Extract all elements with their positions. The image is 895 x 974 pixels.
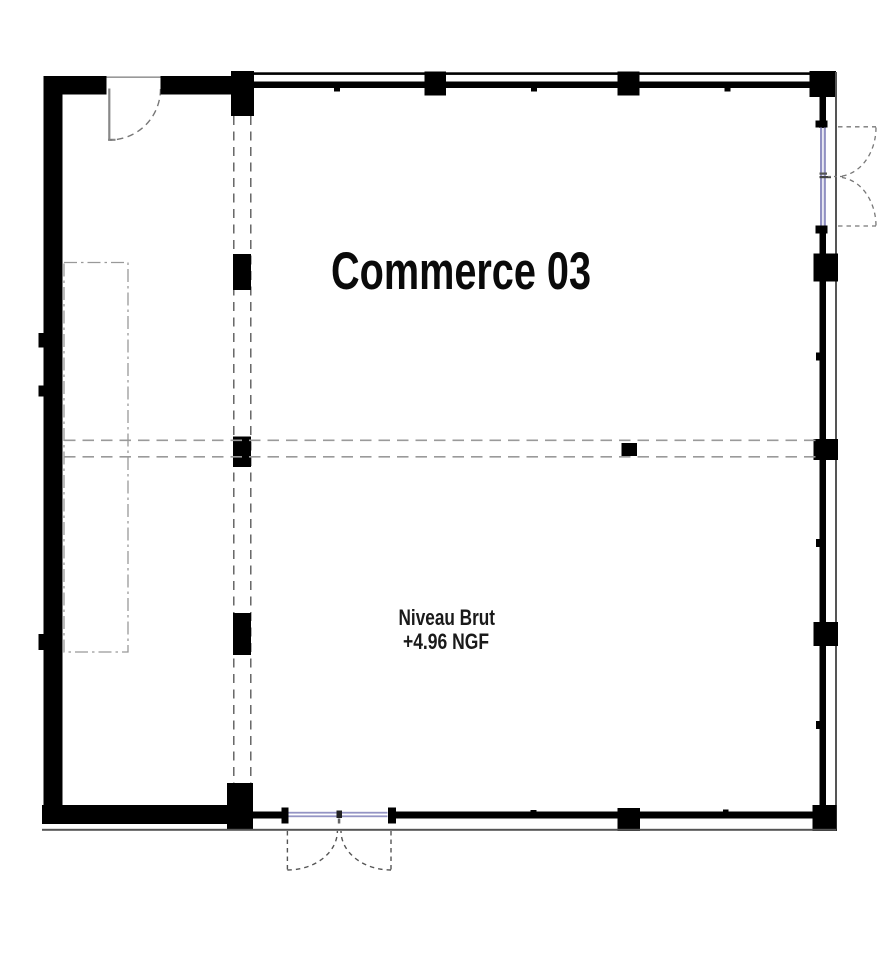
svg-text:+4.96 NGF: +4.96 NGF — [403, 629, 489, 654]
svg-text:Commerce 03: Commerce 03 — [331, 242, 591, 301]
svg-text:Niveau Brut: Niveau Brut — [399, 605, 496, 630]
